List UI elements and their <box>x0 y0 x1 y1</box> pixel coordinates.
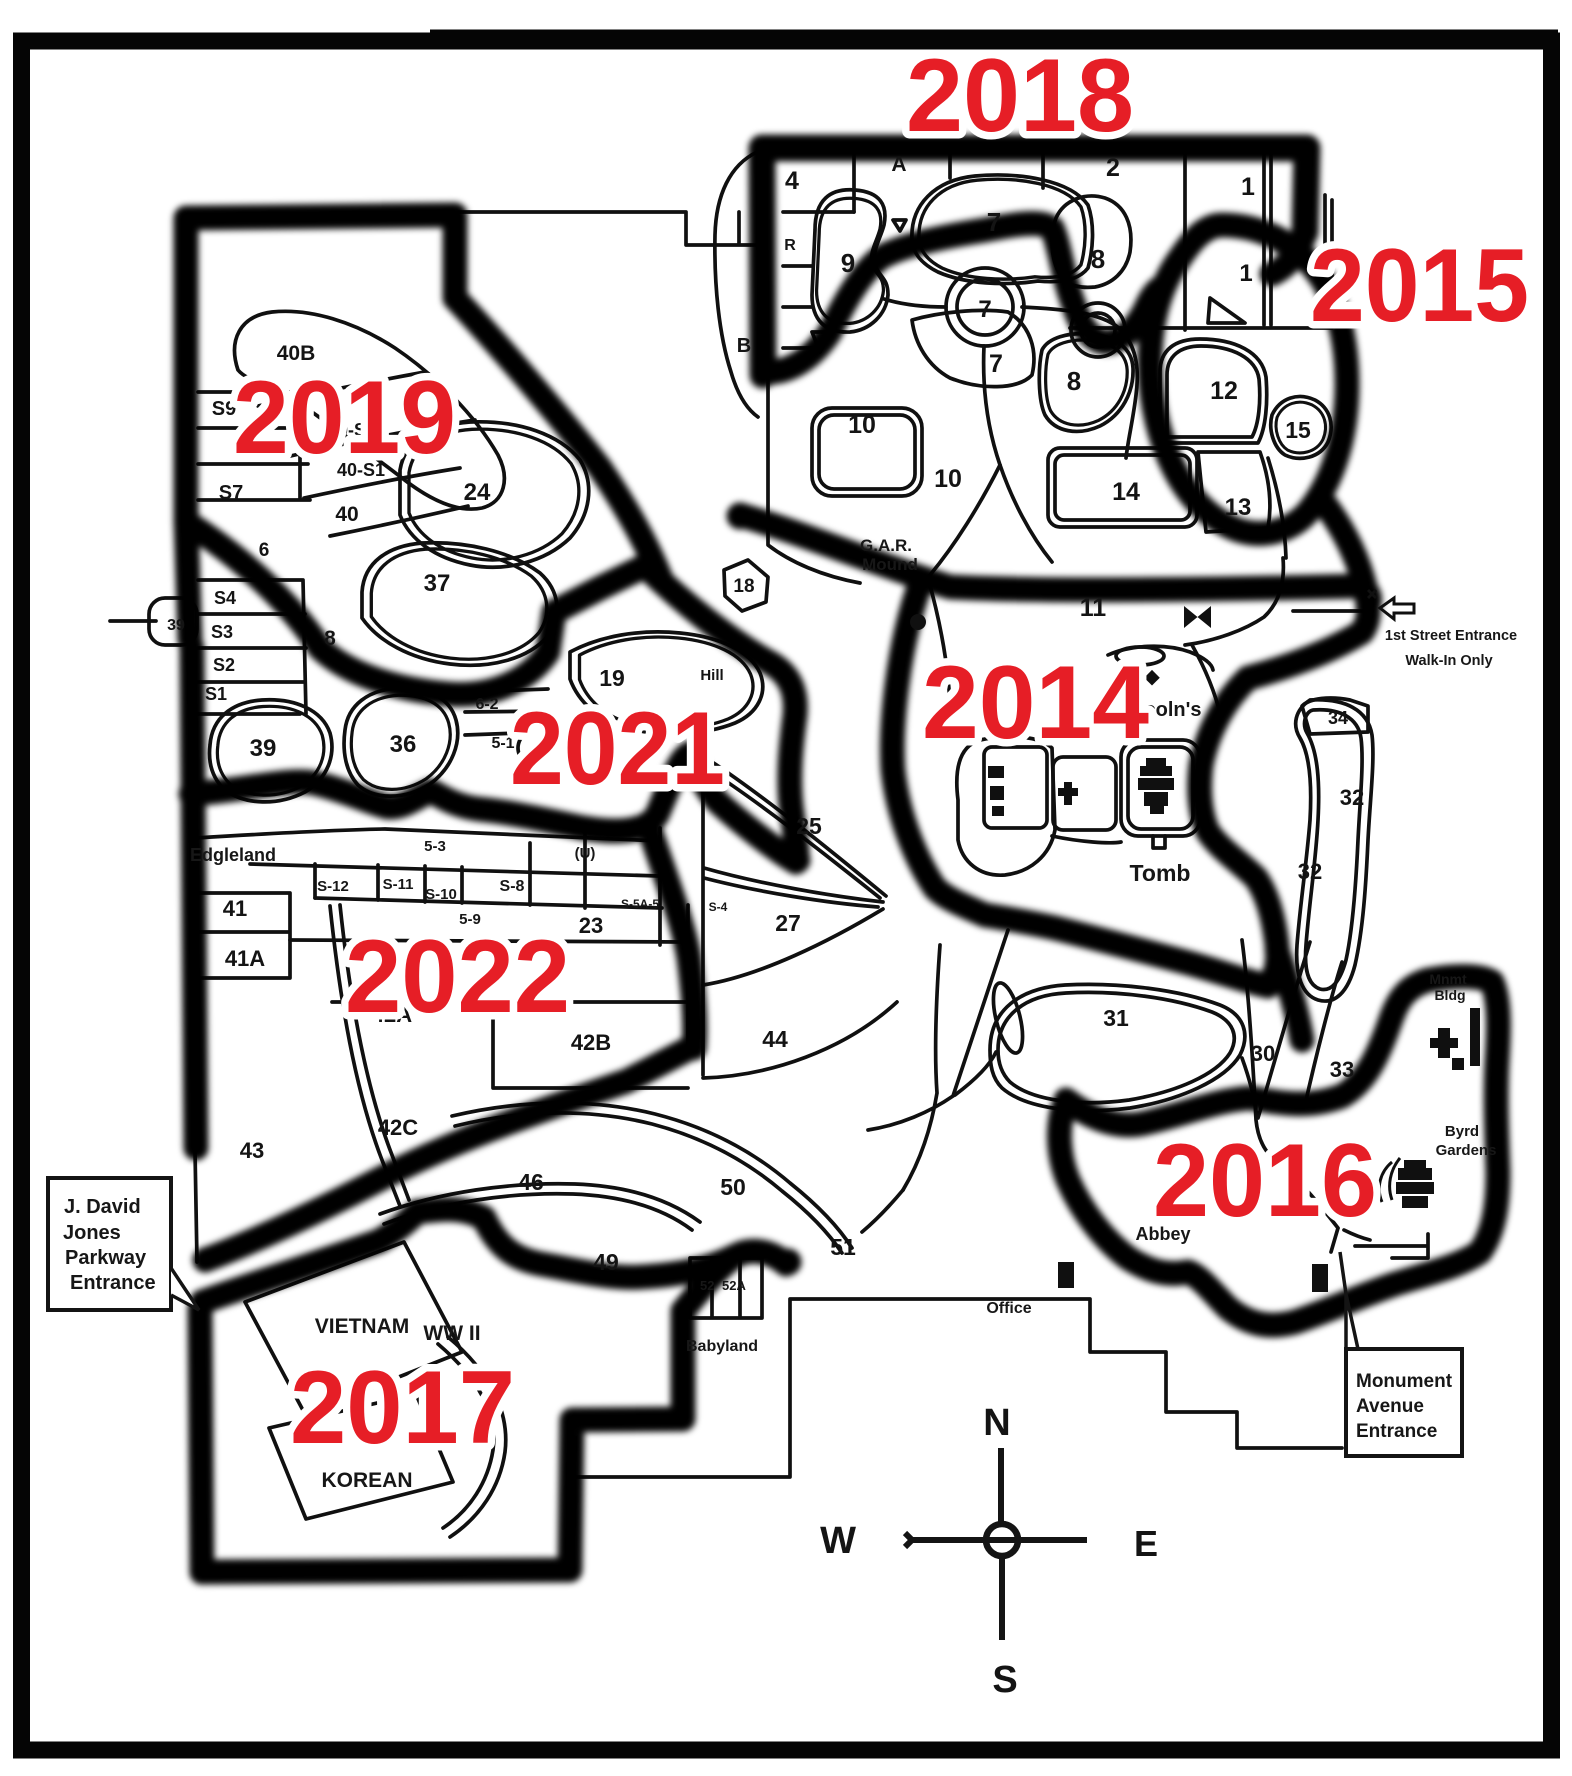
svg-text:W: W <box>820 1520 856 1562</box>
svg-text:J. David: J. David <box>64 1196 141 1218</box>
svg-text:52: 52 <box>700 1278 714 1293</box>
svg-text:34: 34 <box>1328 708 1348 728</box>
svg-text:39: 39 <box>167 617 185 634</box>
svg-text:42C: 42C <box>378 1115 418 1140</box>
svg-text:2018: 2018 <box>906 38 1134 154</box>
svg-text:Tomb: Tomb <box>1130 860 1191 886</box>
svg-text:(U): (U) <box>575 845 596 862</box>
svg-text:24: 24 <box>464 479 491 506</box>
svg-text:49: 49 <box>593 1249 619 1275</box>
svg-text:S-8: S-8 <box>500 878 525 895</box>
svg-text:11: 11 <box>1080 594 1107 622</box>
svg-text:39: 39 <box>250 735 277 762</box>
svg-text:Mnmt: Mnmt <box>1429 971 1467 987</box>
svg-text:8: 8 <box>1091 244 1105 274</box>
svg-text:18: 18 <box>733 576 754 597</box>
svg-text:32: 32 <box>1298 859 1322 884</box>
svg-text:43: 43 <box>240 1138 264 1163</box>
svg-text:30: 30 <box>1251 1041 1275 1066</box>
svg-text:37: 37 <box>424 570 451 597</box>
svg-text:S-4: S-4 <box>709 900 728 914</box>
svg-text:4: 4 <box>785 167 799 195</box>
svg-text:9: 9 <box>841 248 855 278</box>
svg-text:25: 25 <box>796 813 822 839</box>
svg-text:2014: 2014 <box>922 645 1149 761</box>
svg-text:1: 1 <box>1239 260 1252 287</box>
svg-text:6: 6 <box>259 540 270 561</box>
svg-text:B: B <box>737 335 751 357</box>
svg-text:1st Street Entrance: 1st Street Entrance <box>1385 628 1517 644</box>
svg-text:S2: S2 <box>213 655 235 675</box>
svg-text:41: 41 <box>223 896 247 921</box>
svg-text:Bldg: Bldg <box>1434 987 1465 1003</box>
svg-text:2017: 2017 <box>290 1350 515 1466</box>
svg-text:19: 19 <box>599 665 625 691</box>
svg-text:S7: S7 <box>219 482 243 504</box>
svg-text:36: 36 <box>390 731 417 758</box>
svg-text:10: 10 <box>848 411 876 439</box>
svg-text:46: 46 <box>518 1169 544 1195</box>
svg-text:Jones: Jones <box>63 1222 121 1244</box>
svg-text:8: 8 <box>1067 366 1081 396</box>
svg-text:Mound: Mound <box>862 555 918 574</box>
svg-text:S4: S4 <box>214 588 236 608</box>
svg-text:27: 27 <box>775 910 801 936</box>
svg-text:N: N <box>983 1402 1010 1444</box>
svg-text:2015: 2015 <box>1310 228 1529 344</box>
svg-text:Edgleland: Edgleland <box>190 845 276 865</box>
svg-text:Walk-In Only: Walk-In Only <box>1405 653 1492 669</box>
svg-text:32: 32 <box>1340 785 1364 810</box>
svg-text:15: 15 <box>1285 417 1311 443</box>
svg-text:E: E <box>1134 1523 1158 1564</box>
svg-text:14: 14 <box>1112 478 1140 506</box>
svg-text:A: A <box>891 153 906 176</box>
svg-text:42B: 42B <box>571 1030 611 1055</box>
svg-text:1: 1 <box>1241 173 1255 201</box>
svg-text:7: 7 <box>989 350 1003 378</box>
svg-text:52A: 52A <box>722 1278 746 1293</box>
svg-text:Parkway: Parkway <box>65 1247 147 1269</box>
svg-text:2021: 2021 <box>510 691 725 807</box>
svg-text:40: 40 <box>335 503 358 526</box>
svg-text:7: 7 <box>978 296 991 323</box>
svg-text:2: 2 <box>1106 154 1120 182</box>
svg-text:31: 31 <box>1103 1005 1129 1031</box>
svg-text:R: R <box>784 237 796 254</box>
svg-text:G.A.R.: G.A.R. <box>860 536 912 555</box>
svg-text:50: 50 <box>720 1174 746 1200</box>
svg-text:S-5A-5: S-5A-5 <box>621 897 659 911</box>
svg-text:23: 23 <box>579 913 603 938</box>
svg-text:2016: 2016 <box>1153 1123 1377 1239</box>
svg-text:Entrance: Entrance <box>70 1272 156 1294</box>
svg-text:51: 51 <box>830 1234 856 1260</box>
svg-text:13: 13 <box>1225 494 1252 521</box>
svg-text:Monument: Monument <box>1356 1371 1453 1392</box>
svg-text:S-10: S-10 <box>425 886 457 903</box>
svg-text:VIETNAM: VIETNAM <box>315 1315 410 1338</box>
svg-text:Entrance: Entrance <box>1356 1421 1437 1442</box>
svg-text:10: 10 <box>934 465 962 493</box>
svg-text:WW II: WW II <box>423 1322 480 1345</box>
svg-text:2022: 2022 <box>345 919 570 1035</box>
svg-text:8: 8 <box>324 627 336 650</box>
svg-text:S3: S3 <box>211 622 233 642</box>
svg-text:41A: 41A <box>225 946 265 971</box>
svg-text:S-12: S-12 <box>317 878 349 895</box>
svg-text:S: S <box>992 1659 1017 1701</box>
svg-text:12: 12 <box>1210 377 1238 405</box>
svg-text:Avenue: Avenue <box>1356 1396 1424 1417</box>
svg-text:33: 33 <box>1330 1057 1354 1082</box>
svg-text:Byrd: Byrd <box>1445 1123 1479 1140</box>
svg-text:Babyland: Babyland <box>686 1338 758 1355</box>
svg-text:2019: 2019 <box>233 360 456 476</box>
svg-text:Hill: Hill <box>700 667 723 684</box>
svg-text:KOREAN: KOREAN <box>321 1469 412 1492</box>
svg-text:S-11: S-11 <box>383 876 414 893</box>
svg-text:5-3: 5-3 <box>424 838 446 855</box>
svg-text:S1: S1 <box>205 684 227 704</box>
svg-text:6-2: 6-2 <box>475 696 498 713</box>
svg-text:Office: Office <box>986 1300 1031 1317</box>
svg-text:44: 44 <box>762 1026 788 1052</box>
svg-text:7: 7 <box>987 207 1001 237</box>
svg-text:Gardens: Gardens <box>1436 1142 1497 1159</box>
